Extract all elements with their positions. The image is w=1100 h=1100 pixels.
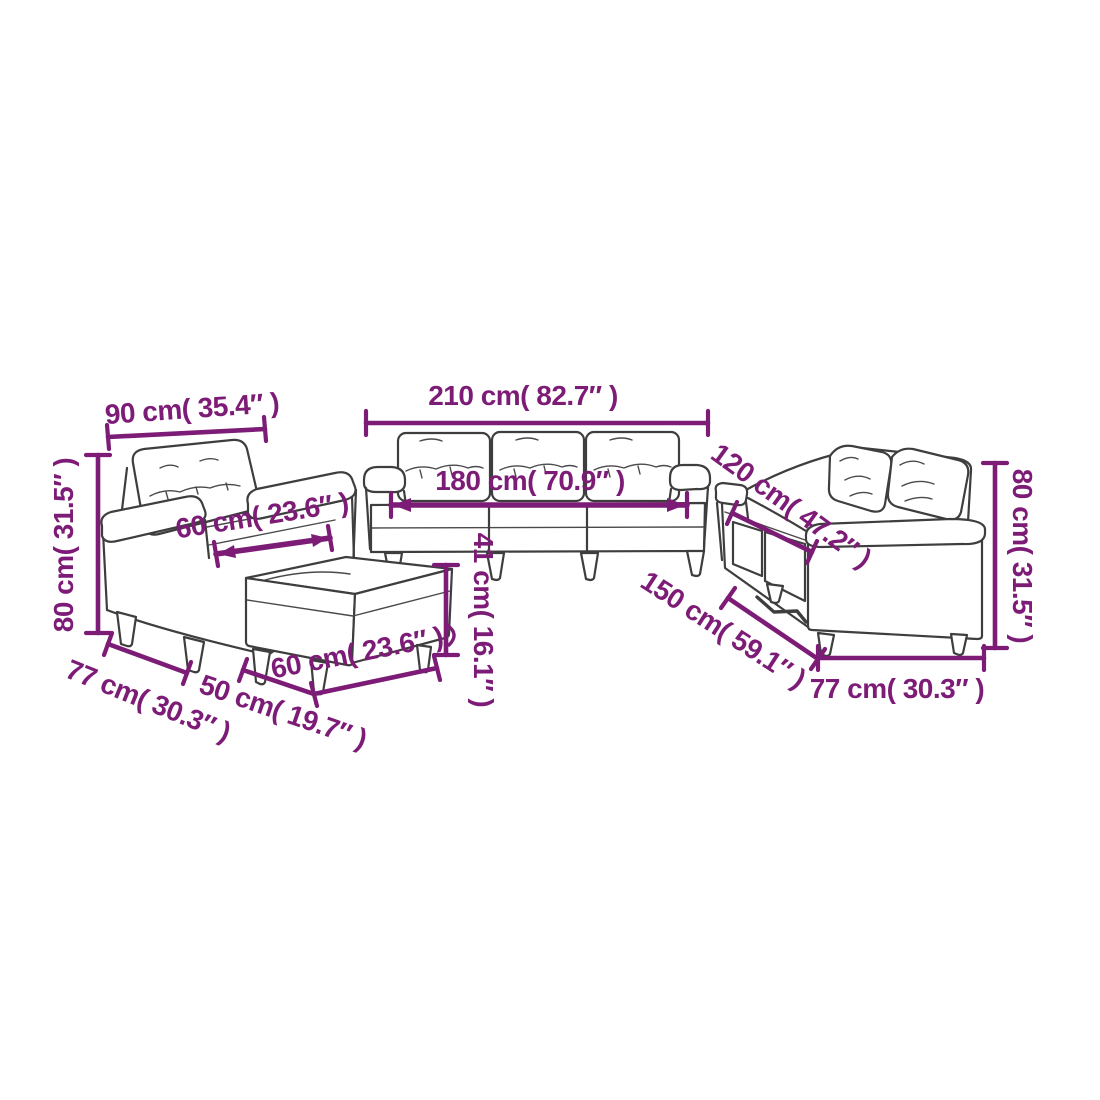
sofa-armrest [364, 467, 405, 492]
sofa-leg [581, 553, 598, 580]
loveseat-back-cushion [829, 446, 891, 512]
diagram-canvas: 90 cm( 35.4″ ) 80 cm( 31.5″ ) 60 cm( 23.… [0, 0, 1100, 1100]
sofa-leg [687, 551, 704, 576]
dimension-diagram: 90 cm( 35.4″ ) 80 cm( 31.5″ ) 60 cm( 23.… [0, 0, 1100, 1100]
armchair-height-label: 80 cm( 31.5″ ) [48, 458, 79, 633]
loveseat-depth-label: 77 cm( 30.3″ ) [810, 673, 985, 704]
loveseat-seat-cushion [733, 522, 762, 576]
loveseat-back-cushion [888, 449, 968, 520]
armchair-width-label: 90 cm( 35.4″ ) [104, 387, 280, 430]
footstool-height-label: 41 cm( 16.1″ ) [468, 533, 499, 708]
armchair-leg [117, 612, 136, 646]
sofa-seat-width-label: 180 cm( 70.9″ ) [435, 465, 625, 496]
loveseat-height-label: 80 cm( 31.5″ ) [1007, 469, 1038, 644]
sofa-width-label: 210 cm( 82.7″ ) [428, 380, 618, 411]
loveseat-leg [951, 634, 967, 655]
sofa-armrest [670, 465, 710, 490]
